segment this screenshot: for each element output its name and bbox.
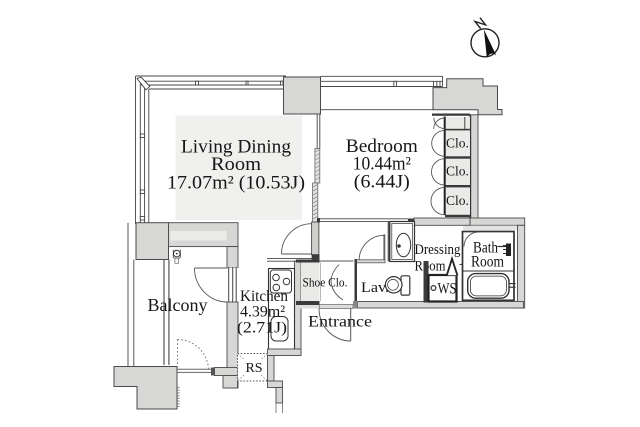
svg-text:Clo.: Clo. <box>446 164 469 179</box>
svg-text:Clo.: Clo. <box>446 193 469 208</box>
svg-text:(2.71J): (2.71J) <box>237 320 287 337</box>
svg-text:Kitchen: Kitchen <box>240 288 288 305</box>
svg-text:Shoe Clo.: Shoe Clo. <box>303 275 348 290</box>
svg-text:Balcony: Balcony <box>148 295 208 315</box>
svg-text:(6.44J): (6.44J) <box>354 173 410 193</box>
svg-text:Clo.: Clo. <box>446 136 469 151</box>
svg-text:Room: Room <box>415 259 446 275</box>
svg-text:Entrance: Entrance <box>308 314 372 331</box>
svg-text:4.39m²: 4.39m² <box>240 304 285 321</box>
svg-text:Lav.: Lav. <box>361 280 389 296</box>
svg-text:Room: Room <box>471 254 504 271</box>
svg-text:WS: WS <box>438 281 457 298</box>
svg-text:Dressing: Dressing <box>415 242 461 258</box>
svg-text:RS: RS <box>245 361 262 376</box>
svg-text:10.44m²: 10.44m² <box>353 155 411 175</box>
svg-text:17.07m² (10.53J): 17.07m² (10.53J) <box>167 173 305 194</box>
